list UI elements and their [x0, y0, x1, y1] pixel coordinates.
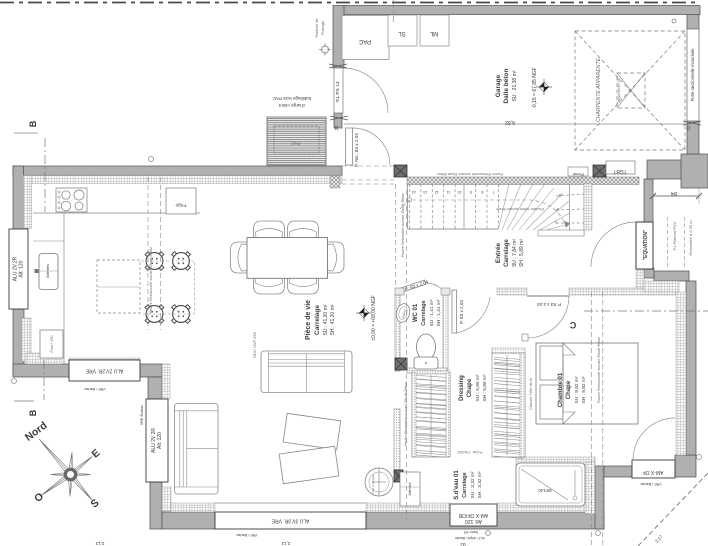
svg-text:2,12: 2,12 — [95, 541, 104, 546]
svg-text:P. 83 x 2,04: P. 83 x 2,04 — [459, 300, 464, 324]
svg-text:Dressing: Dressing — [459, 375, 465, 401]
svg-text:84: 84 — [671, 190, 677, 196]
svg-text:VRE / Baclav: VRE / Baclav — [84, 387, 105, 391]
svg-text:ML: ML — [429, 30, 438, 36]
svg-text:Porte sectionnelle motorisée: Porte sectionnelle motorisée — [690, 48, 695, 102]
svg-text:C: C — [569, 320, 576, 330]
svg-text:WC 01: WC 01 — [413, 303, 419, 322]
svg-text:SU : 5,80 m²: SU : 5,80 m² — [475, 374, 481, 401]
svg-text:Plomb.: Plomb. — [572, 172, 584, 176]
svg-text:F.x Plafond PVC: F.x Plafond PVC — [672, 221, 677, 250]
svg-text:Retombée à 2,35 m: Retombée à 2,35 m — [688, 220, 693, 256]
svg-text:10: 10 — [458, 190, 462, 194]
svg-text:Carrelage: Carrelage — [421, 300, 427, 325]
svg-text:9: 9 — [470, 190, 472, 194]
svg-text:P.Gal. 73x204: P.Gal. 73x204 — [457, 450, 483, 455]
svg-text:SU : 3,32 m²: SU : 3,32 m² — [470, 471, 476, 498]
svg-text:AM-X OF: AM-X OF — [643, 469, 664, 475]
svg-text:Frigo: Frigo — [175, 202, 186, 208]
svg-text:PAC: PAC — [291, 141, 301, 146]
svg-text:5: 5 — [559, 193, 561, 197]
svg-text:3: 3 — [557, 207, 559, 211]
svg-text:Plan à Vasque: Plan à Vasque — [371, 474, 375, 494]
svg-text:1: 1 — [555, 220, 557, 224]
svg-text:Poutre Retombée suivant Etude: Poutre Retombée suivant Etude Béton — [401, 193, 405, 258]
svg-text:Poutre Retroussée suivant Etud: Poutre Retroussée suivant Etude Béton — [149, 247, 153, 314]
svg-text:Poutre Retombée suivant Etude: Poutre Retombée suivant Etude Béton — [404, 382, 408, 447]
svg-text:2,12: 2,12 — [281, 541, 290, 546]
svg-text:TGBT: TGBT — [613, 168, 626, 174]
svg-text:Alt: 120: Alt: 120 — [18, 260, 24, 277]
svg-text:P. No.: 83 x 2,04: P. No.: 83 x 2,04 — [354, 133, 359, 167]
svg-text:-0,15 = 67,85 NGF: -0,15 = 67,85 NGF — [532, 67, 538, 109]
svg-text:Alt: 120: Alt: 120 — [157, 432, 163, 449]
svg-text:13: 13 — [423, 190, 427, 194]
svg-text:ALU 2V.2R. VRE: ALU 2V.2R. VRE — [85, 368, 123, 374]
svg-text:14: 14 — [412, 190, 416, 194]
svg-text:SU : 21,38 m²: SU : 21,38 m² — [512, 70, 518, 101]
svg-text:Four+ MO: Four+ MO — [50, 335, 54, 352]
svg-text:90*140: 90*140 — [538, 488, 552, 493]
svg-text:VRE / Baclav: VRE / Baclav — [640, 482, 661, 486]
svg-text:SU : 9,82 m²: SU : 9,82 m² — [574, 376, 580, 403]
svg-text:Poutre Retroussée suivant Etud: Poutre Retroussée suivant Etude Béton — [437, 172, 504, 176]
svg-text:6,82: 6,82 — [505, 119, 515, 125]
svg-text:SH : 5,80 m²: SH : 5,80 m² — [482, 374, 488, 401]
svg-text:Escalier béton suivant étude: Escalier béton suivant étude — [496, 207, 544, 211]
svg-text:SL: SL — [398, 30, 406, 36]
svg-text:7: 7 — [493, 190, 495, 194]
svg-text:ALU 3V.3R. VRE: ALU 3V.3R. VRE — [271, 518, 309, 524]
svg-text:Puisage: Puisage — [320, 20, 325, 35]
svg-text:92: 92 — [460, 541, 466, 546]
svg-text:±0,00 = +68,00 NGF: ±0,00 = +68,00 NGF — [371, 295, 377, 341]
svg-text:CHARPENTE APPARENTE: CHARPENTE APPARENTE — [596, 57, 602, 122]
svg-text:RDC HSP 250: RDC HSP 250 — [252, 331, 257, 357]
svg-text:Carrelage: Carrelage — [462, 472, 468, 497]
svg-text:SH : 41,20 m²: SH : 41,20 m² — [330, 304, 336, 335]
svg-text:SH : 3,32 m²: SH : 3,32 m² — [477, 471, 483, 498]
svg-text:SH : 5,89 m²: SH : 5,89 m² — [519, 239, 525, 267]
svg-text:P. 83 x 2,04: P. 83 x 2,04 — [537, 302, 561, 307]
svg-text:Attentes: Attentes — [408, 482, 412, 495]
svg-text:Alt: 120: Alt: 120 — [465, 518, 482, 524]
svg-text:SH : 1,41 m²: SH : 1,41 m² — [436, 299, 442, 326]
svg-text:S.d'eau 01: S.d'eau 01 — [454, 470, 460, 500]
svg-text:Cloison Tête de lit: Cloison Tête de lit — [528, 377, 533, 410]
svg-text:charge client: charge client — [278, 103, 305, 108]
svg-text:PAC: PAC — [358, 38, 371, 44]
svg-text:SU : 41,20 m²: SU : 41,20 m² — [323, 304, 329, 335]
svg-text:Chape: Chape — [467, 378, 473, 397]
svg-text:Pièce de vie: Pièce de vie — [305, 300, 312, 340]
svg-text:"EQUATION": "EQUATION" — [643, 229, 649, 260]
svg-text:22: 22 — [334, 125, 339, 131]
svg-text:11: 11 — [446, 190, 450, 194]
svg-text:44.2 / dépôt / Baclav: 44.2 / dépôt / Baclav — [455, 536, 485, 540]
svg-text:VRE / Baclav: VRE / Baclav — [236, 533, 257, 537]
svg-text:B: B — [28, 120, 38, 127]
svg-text:habillage bois PAC: habillage bois PAC — [272, 96, 311, 101]
svg-text:12: 12 — [435, 190, 439, 194]
svg-text:22: 22 — [686, 125, 691, 131]
svg-text:SU : 1,41 m²: SU : 1,41 m² — [429, 299, 435, 326]
svg-text:Dalle béton: Dalle béton — [503, 68, 510, 103]
svg-text:'KL PS 13: 'KL PS 13 — [335, 81, 341, 102]
svg-text:Carrelage: Carrelage — [504, 238, 510, 266]
svg-text:SH : 9,82 m²: SH : 9,82 m² — [581, 376, 587, 403]
svg-text:AM-X OF/OB: AM-X OF/OB — [458, 512, 488, 518]
svg-text:B: B — [28, 409, 38, 416]
svg-text:Trappe accès VS: Trappe accès VS — [617, 77, 621, 103]
svg-text:Carrelage: Carrelage — [314, 305, 321, 335]
svg-text:Chambre 01: Chambre 01 — [558, 372, 564, 407]
svg-text:Poutre Retroussée suivant Etud: Poutre Retroussée suivant Etude Béton — [597, 337, 601, 404]
svg-text:Robinet de: Robinet de — [314, 18, 319, 38]
svg-text:Garage: Garage — [495, 74, 502, 97]
svg-text:8: 8 — [481, 190, 483, 194]
svg-text:Entrée: Entrée — [495, 243, 502, 264]
svg-text:VRE /Baclav: VRE /Baclav — [140, 405, 144, 425]
svg-text:Chape: Chape — [566, 380, 572, 399]
svg-text:Sans VR: Sans VR — [464, 530, 479, 534]
svg-text:SU : 7,84 m²: SU : 7,84 m² — [512, 239, 518, 267]
